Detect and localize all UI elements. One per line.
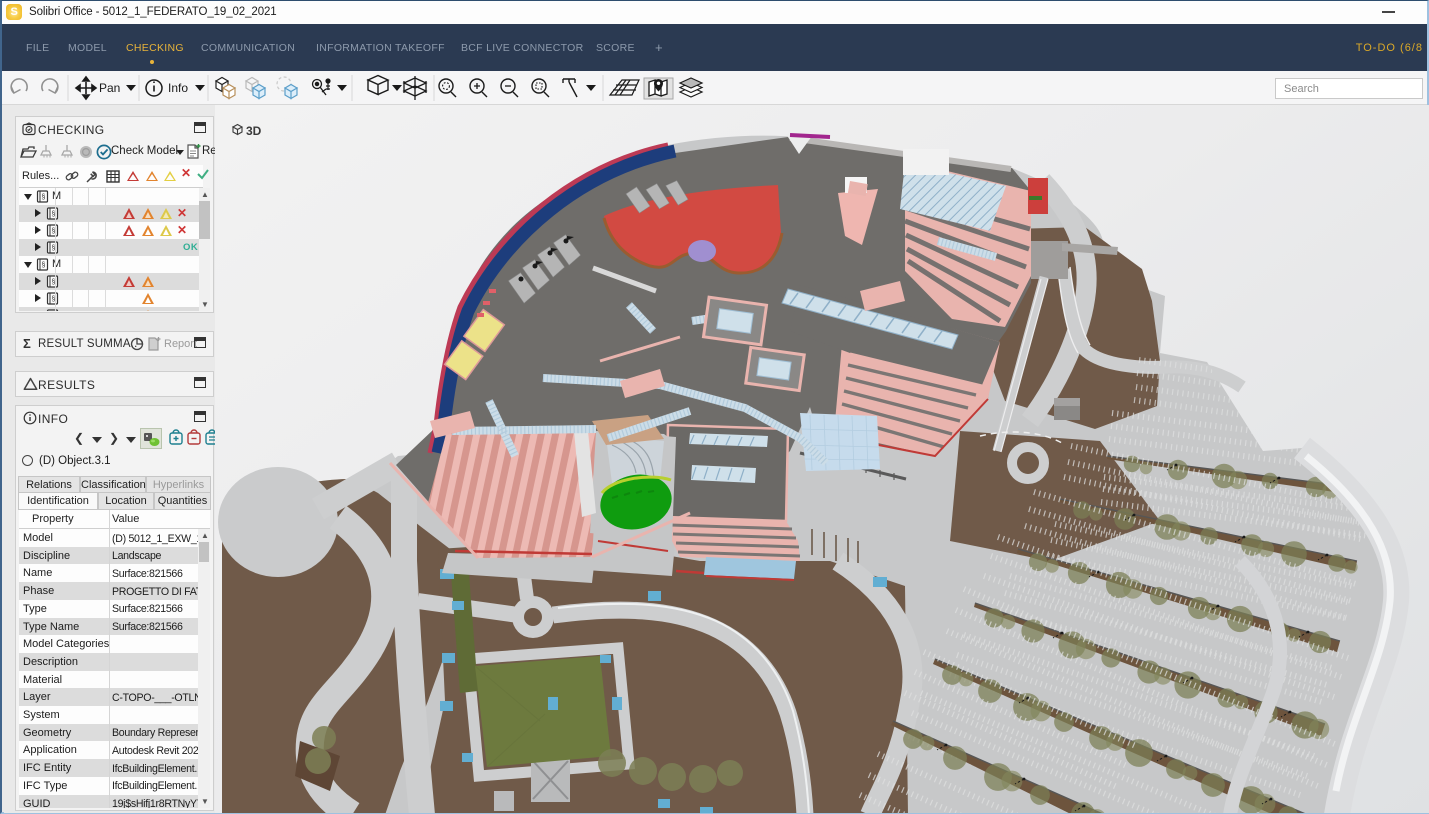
- svg-text:§: §: [42, 262, 46, 269]
- svg-text:Info: Info: [168, 81, 188, 95]
- svg-text:§: §: [42, 194, 46, 201]
- svg-text:Pan: Pan: [99, 81, 120, 95]
